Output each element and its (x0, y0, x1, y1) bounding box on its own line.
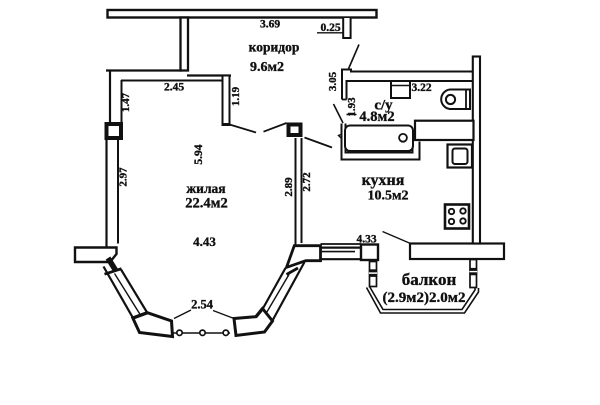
svg-text:2.97: 2.97 (118, 167, 130, 187)
svg-text:жилая: жилая (186, 181, 225, 196)
svg-text:10.5м2: 10.5м2 (367, 189, 408, 204)
svg-text:балкон: балкон (402, 270, 457, 289)
svg-text:1.19: 1.19 (230, 86, 242, 106)
svg-text:коридор: коридор (249, 40, 300, 55)
svg-text:3.22: 3.22 (411, 82, 431, 94)
svg-text:3.69: 3.69 (260, 19, 280, 31)
svg-text:4.33: 4.33 (356, 234, 376, 246)
svg-text:4.43: 4.43 (193, 234, 216, 249)
svg-text:5.94: 5.94 (193, 144, 205, 164)
svg-text:(2.9м2)2.0м2: (2.9м2)2.0м2 (383, 290, 466, 306)
svg-text:кухня: кухня (362, 172, 405, 189)
svg-text:2.89: 2.89 (283, 177, 295, 197)
svg-text:1.47: 1.47 (120, 92, 132, 112)
svg-text:9.6м2: 9.6м2 (250, 60, 284, 75)
svg-text:4.8м2: 4.8м2 (359, 109, 394, 125)
svg-text:22.4м2: 22.4м2 (185, 196, 228, 212)
svg-text:1.93: 1.93 (346, 97, 358, 117)
svg-text:2.45: 2.45 (164, 82, 184, 94)
svg-text:3.05: 3.05 (327, 71, 339, 91)
svg-text:2.72: 2.72 (301, 172, 313, 192)
svg-text:2.54: 2.54 (191, 298, 214, 312)
